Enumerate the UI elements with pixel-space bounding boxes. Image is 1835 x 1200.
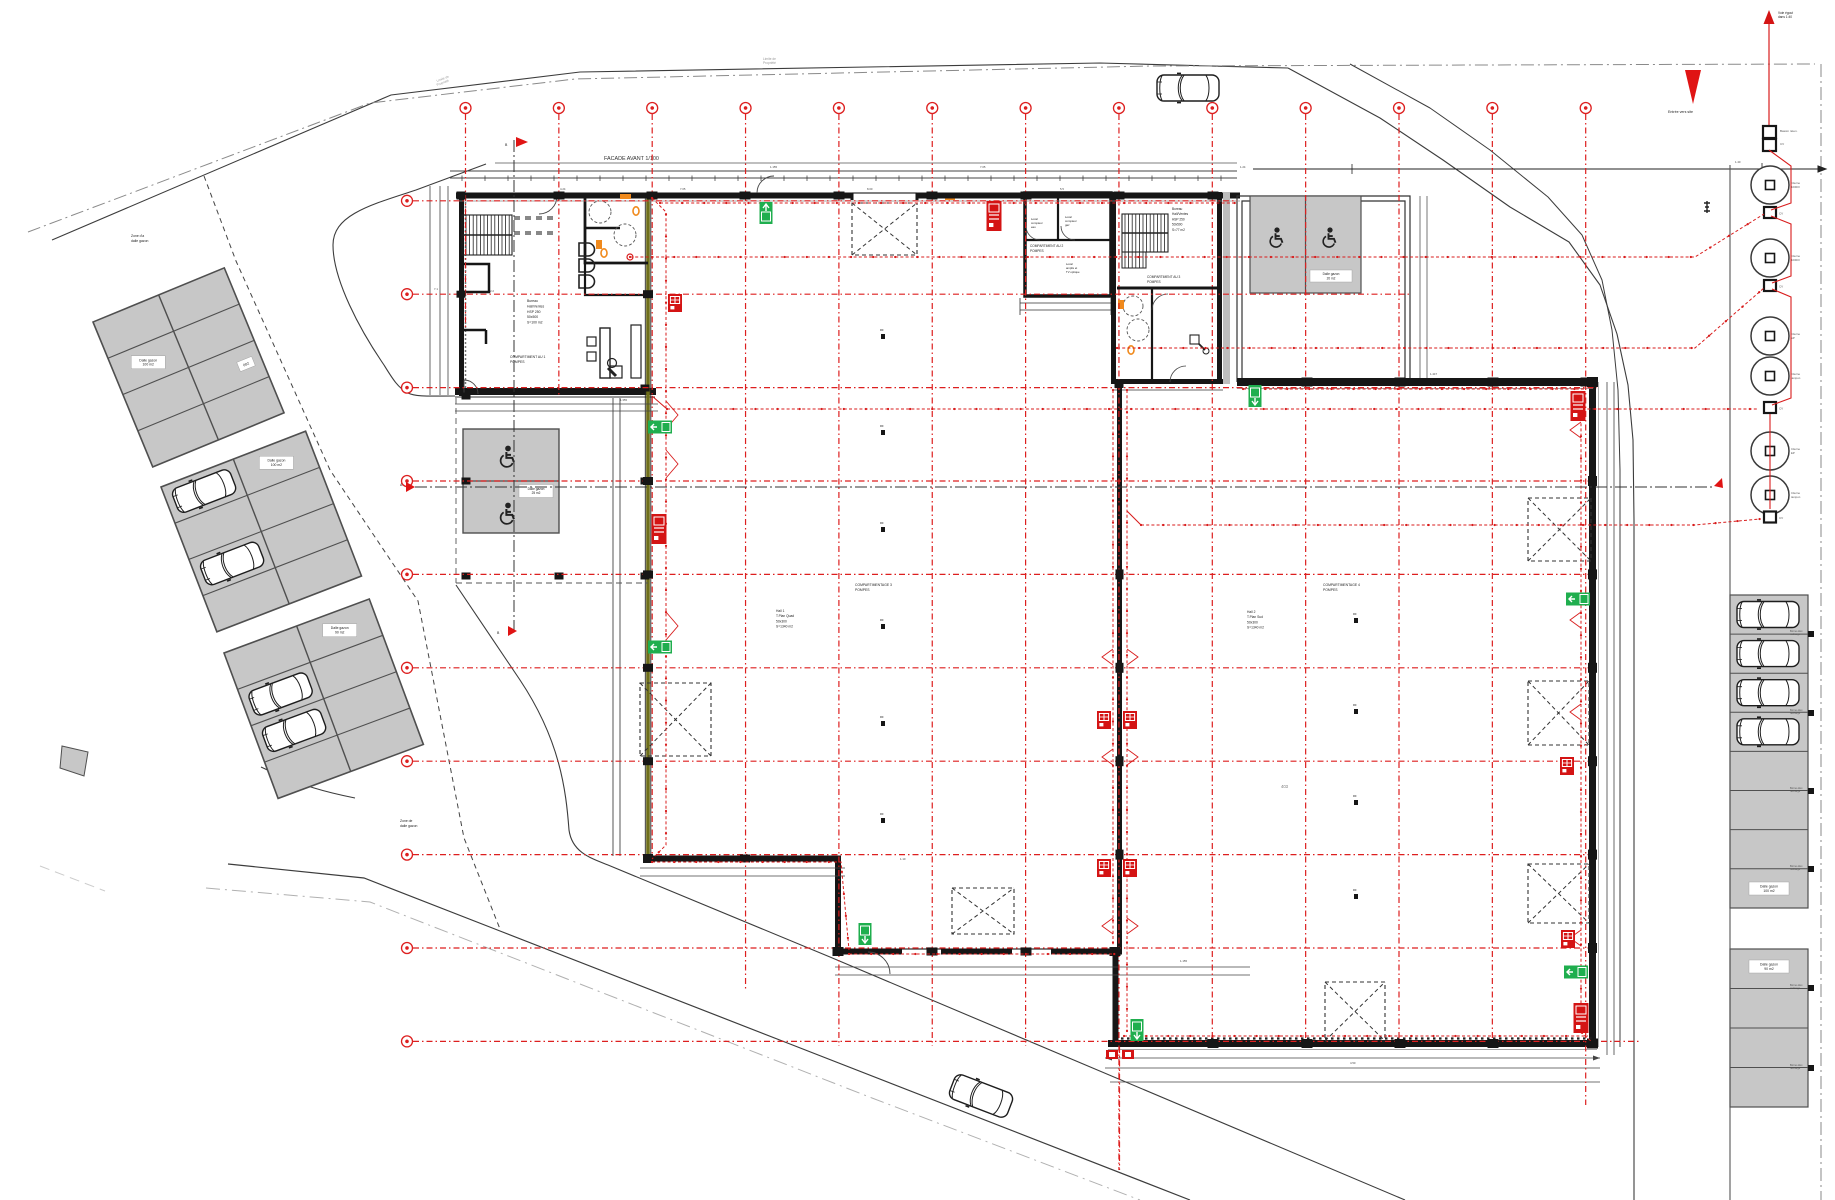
svg-text:25 m2: 25 m2	[532, 491, 541, 495]
svg-text:5.5: 5.5	[1060, 187, 1064, 191]
svg-text:1.40: 1.40	[1735, 160, 1741, 164]
svg-text:1.355: 1.355	[620, 398, 627, 402]
svg-text:FACADE AVANT 1/100: FACADE AVANT 1/100	[604, 156, 659, 162]
svg-text:HSP 250: HSP 250	[527, 310, 541, 314]
svg-text:HSP 250: HSP 250	[1172, 217, 1185, 221]
svg-text:7.05: 7.05	[680, 187, 686, 191]
svg-text:Zone d'a: Zone d'a	[131, 234, 144, 238]
svg-text:1.155: 1.155	[770, 165, 777, 169]
svg-text:RF: RF	[880, 812, 884, 816]
svg-text:recharge: recharge	[1790, 711, 1801, 715]
svg-text:7.05: 7.05	[980, 165, 986, 169]
svg-text:POMPES: POMPES	[1323, 588, 1338, 592]
svg-text:CV: CV	[1779, 407, 1783, 411]
svg-text:90 m2: 90 m2	[1764, 967, 1774, 971]
svg-text:7.1: 7.1	[434, 287, 438, 291]
svg-text:403: 403	[1281, 784, 1289, 789]
svg-text:100 m2: 100 m2	[271, 463, 282, 467]
svg-text:50x300: 50x300	[1247, 620, 1258, 624]
svg-text:50x500: 50x500	[1172, 223, 1183, 227]
svg-text:Bureau: Bureau	[1172, 207, 1183, 211]
svg-text:90 m2: 90 m2	[335, 631, 345, 635]
svg-text:POMPES: POMPES	[855, 588, 870, 592]
svg-text:RF: RF	[880, 618, 884, 622]
svg-text:S=100 m2: S=100 m2	[527, 321, 543, 325]
svg-text:RF: RF	[880, 521, 884, 525]
svg-text:50x300: 50x300	[776, 619, 787, 623]
svg-text:TV optique: TV optique	[1066, 270, 1080, 274]
svg-text:dalle gazon: dalle gazon	[400, 824, 417, 828]
svg-text:S=1340 m2: S=1340 m2	[776, 625, 793, 629]
svg-text:COMPARTIMENT AU 2: COMPARTIMENT AU 2	[1030, 244, 1064, 248]
svg-text:gaz: gaz	[1065, 223, 1070, 227]
svg-text:1.24: 1.24	[1240, 165, 1246, 169]
svg-text:2.2: 2.2	[490, 289, 494, 293]
svg-text:Hall/Ventes: Hall/Ventes	[527, 304, 544, 308]
svg-text:50x500: 50x500	[527, 315, 538, 319]
svg-text:Hall/Ventes: Hall/Ventes	[1172, 212, 1189, 216]
svg-text:4.24: 4.24	[560, 187, 566, 191]
svg-text:CV: CV	[1780, 142, 1784, 146]
svg-text:CV: CV	[1779, 212, 1783, 216]
svg-text:POMPES: POMPES	[1147, 280, 1161, 284]
svg-text:10000 l: 10000 l	[1791, 258, 1801, 262]
svg-text:100 m2: 100 m2	[1763, 889, 1774, 893]
svg-text:Propriété: Propriété	[763, 61, 776, 65]
svg-text:dalle gazon: dalle gazon	[131, 239, 148, 243]
svg-text:RF: RF	[880, 424, 884, 428]
svg-text:RF: RF	[1353, 612, 1357, 616]
svg-text:Bassin réten.: Bassin réten.	[1780, 129, 1798, 133]
svg-text:recharge: recharge	[1790, 632, 1801, 636]
svg-text:COMPARTIMENT AU 3: COMPARTIMENT AU 3	[1147, 275, 1181, 279]
svg-text:recharge: recharge	[1790, 789, 1801, 793]
svg-text:recharge: recharge	[1790, 986, 1801, 990]
svg-text:dans 1:40: dans 1:40	[1778, 15, 1792, 19]
svg-text:Hall 1: Hall 1	[776, 609, 785, 613]
svg-text:8.00: 8.00	[867, 187, 873, 191]
svg-text:20 m2: 20 m2	[1327, 276, 1336, 280]
svg-text:Entrée vers site: Entrée vers site	[1668, 110, 1693, 114]
svg-text:POMPES: POMPES	[1030, 249, 1044, 253]
svg-text:recharge: recharge	[1790, 1066, 1801, 1070]
svg-text:CV: CV	[1779, 516, 1783, 520]
svg-text:Bureau: Bureau	[527, 299, 538, 303]
svg-text:RF: RF	[880, 715, 884, 719]
svg-text:RF: RF	[880, 328, 884, 332]
svg-text:Hall 2: Hall 2	[1247, 610, 1256, 614]
svg-text:COMPARTIMENTAGE 4: COMPARTIMENTAGE 4	[1323, 583, 1360, 587]
svg-text:1.155: 1.155	[1180, 959, 1187, 963]
svg-text:T.Plan Sud: T.Plan Sud	[1247, 615, 1263, 619]
svg-text:100 m2: 100 m2	[143, 363, 154, 367]
svg-text:recharge: recharge	[1790, 867, 1801, 871]
svg-text:RF: RF	[1353, 703, 1357, 707]
svg-text:COMPARTIMENT AU 1: COMPARTIMENT AU 1	[510, 355, 546, 359]
svg-text:T.Plan Quad: T.Plan Quad	[776, 614, 794, 618]
svg-text:10000 l: 10000 l	[1791, 185, 1801, 189]
svg-text:tampon: tampon	[1791, 376, 1801, 380]
svg-text:1.10: 1.10	[900, 857, 906, 861]
svg-text:1.447: 1.447	[1430, 372, 1437, 376]
svg-text:RF: RF	[1353, 888, 1357, 892]
svg-text:4.50: 4.50	[1350, 1061, 1356, 1065]
svg-text:tampon: tampon	[1791, 495, 1801, 499]
svg-text:S=1340 m2: S=1340 m2	[1247, 626, 1264, 630]
svg-text:RF: RF	[1353, 794, 1357, 798]
svg-text:eau: eau	[1031, 225, 1036, 229]
svg-text:S=77 m2: S=77 m2	[1172, 228, 1185, 232]
svg-text:EP: EP	[1791, 451, 1795, 455]
svg-text:POMPES: POMPES	[510, 360, 525, 364]
svg-text:COMPARTIMENTAGE 3: COMPARTIMENTAGE 3	[855, 583, 892, 587]
svg-text:EP: EP	[1791, 336, 1795, 340]
svg-text:Zone de: Zone de	[400, 819, 413, 823]
svg-text:CV: CV	[1779, 285, 1783, 289]
